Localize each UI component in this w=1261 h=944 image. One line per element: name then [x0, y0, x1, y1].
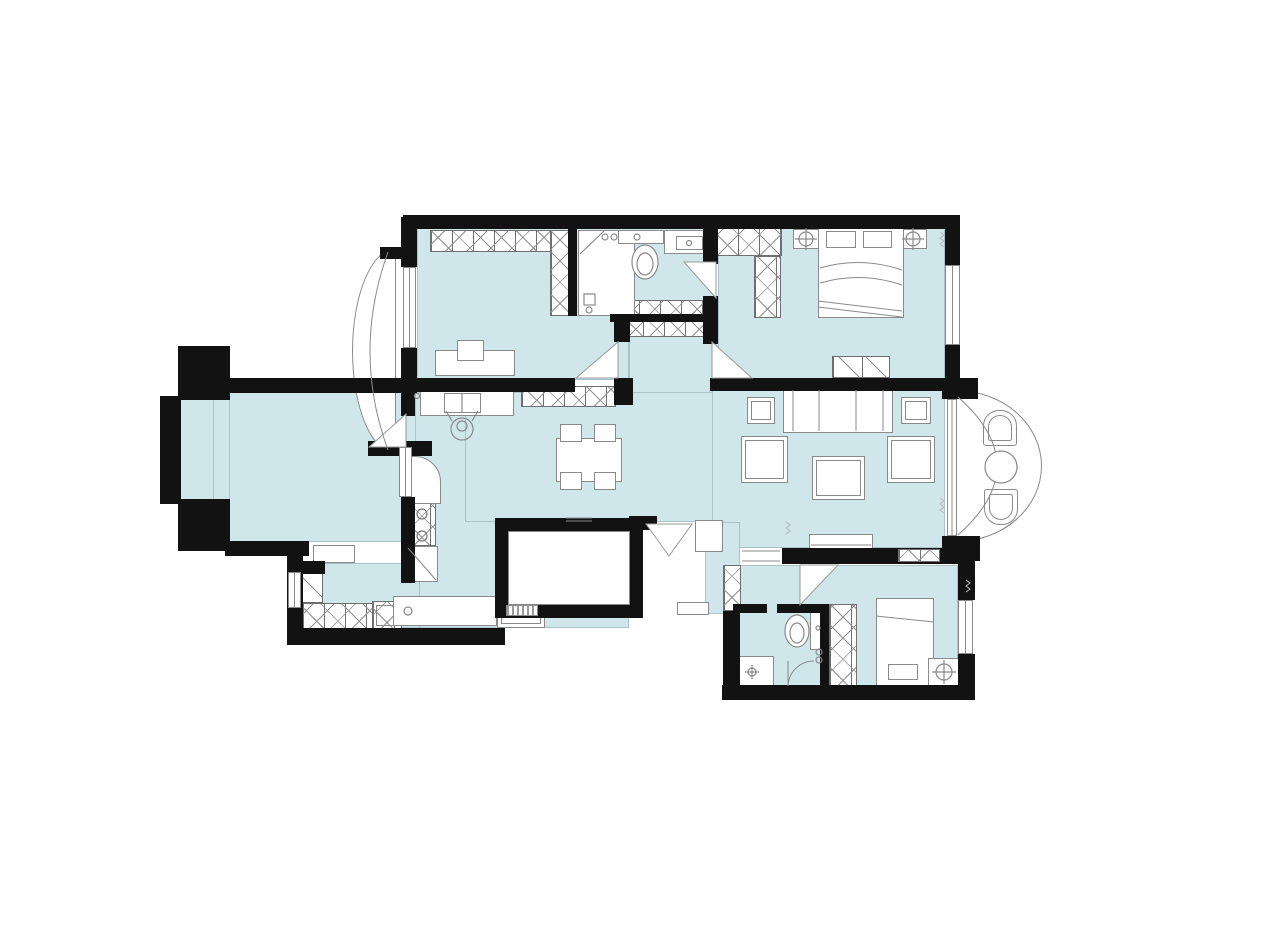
entry-stub: [677, 602, 709, 615]
cabinet-utility-low: [302, 603, 374, 629]
cabinet-utility-side: [300, 571, 323, 603]
wall: [568, 228, 577, 316]
wall: [160, 396, 181, 504]
pillar: [178, 499, 230, 551]
window-second-bed: [958, 600, 973, 654]
pillow: [863, 231, 892, 248]
ensuite-shower: [736, 656, 774, 686]
wall: [703, 316, 718, 344]
monitor: [457, 340, 484, 361]
wall: [380, 247, 404, 259]
entry-step: [695, 520, 723, 552]
bath-counter: [618, 230, 664, 244]
wall: [945, 215, 960, 265]
bench-master: [832, 356, 890, 378]
niche-cabinet-living: [898, 549, 940, 562]
window-utility: [288, 572, 301, 608]
wall: [820, 604, 829, 689]
pillow: [826, 231, 856, 248]
wall: [401, 217, 417, 267]
side-table-right: [901, 397, 931, 424]
dining-chair: [560, 472, 582, 490]
wall: [225, 378, 417, 393]
wall: [703, 296, 718, 318]
wardrobe-master-top: [716, 228, 782, 256]
pillow: [888, 664, 918, 680]
stairwell-core: [508, 531, 630, 605]
pillar: [178, 346, 230, 400]
wall: [614, 383, 633, 405]
coffee-table: [812, 456, 865, 500]
floor-plan: [0, 0, 1261, 944]
wall: [958, 654, 975, 700]
wall: [777, 604, 826, 613]
wall: [722, 685, 975, 700]
washing-machine-label: [506, 605, 538, 616]
wall: [403, 378, 575, 392]
dining-chair: [560, 424, 582, 442]
kitchen-work-counter: [393, 596, 497, 626]
wardrobe-second-bed: [829, 604, 857, 689]
wall: [287, 628, 505, 645]
wall: [401, 392, 415, 416]
vanity-basin: [676, 236, 703, 250]
armchair-left: [741, 436, 788, 483]
kitchen-double-sink: [444, 393, 481, 413]
wall: [782, 548, 975, 564]
sofa: [783, 388, 893, 433]
wall: [703, 228, 718, 264]
wall: [942, 378, 978, 399]
cabinet-corridor: [621, 321, 714, 337]
side-table-left: [747, 397, 775, 424]
dining-chair: [594, 472, 616, 490]
wall: [733, 604, 767, 613]
dining-chair: [594, 424, 616, 442]
wardrobe-master-side: [754, 256, 781, 318]
wall: [710, 378, 960, 391]
nightstand-master-left: [793, 229, 821, 249]
wardrobe-study-side: [550, 230, 570, 316]
wardrobe-study-top: [430, 230, 552, 252]
window-living-bay: [947, 399, 957, 536]
bay-lounge-chair-top: [983, 410, 1017, 446]
armchair-right: [887, 436, 935, 483]
wall: [403, 215, 960, 229]
wall: [958, 548, 975, 600]
wall: [614, 316, 630, 342]
window-kitchen: [399, 447, 412, 497]
bay-window-mullion: [213, 400, 214, 500]
nightstand-second-bed: [928, 658, 960, 686]
wall: [401, 497, 415, 583]
window-master: [945, 265, 960, 345]
window-study: [403, 267, 416, 348]
bay-lounge-chair-bottom: [984, 489, 1018, 525]
